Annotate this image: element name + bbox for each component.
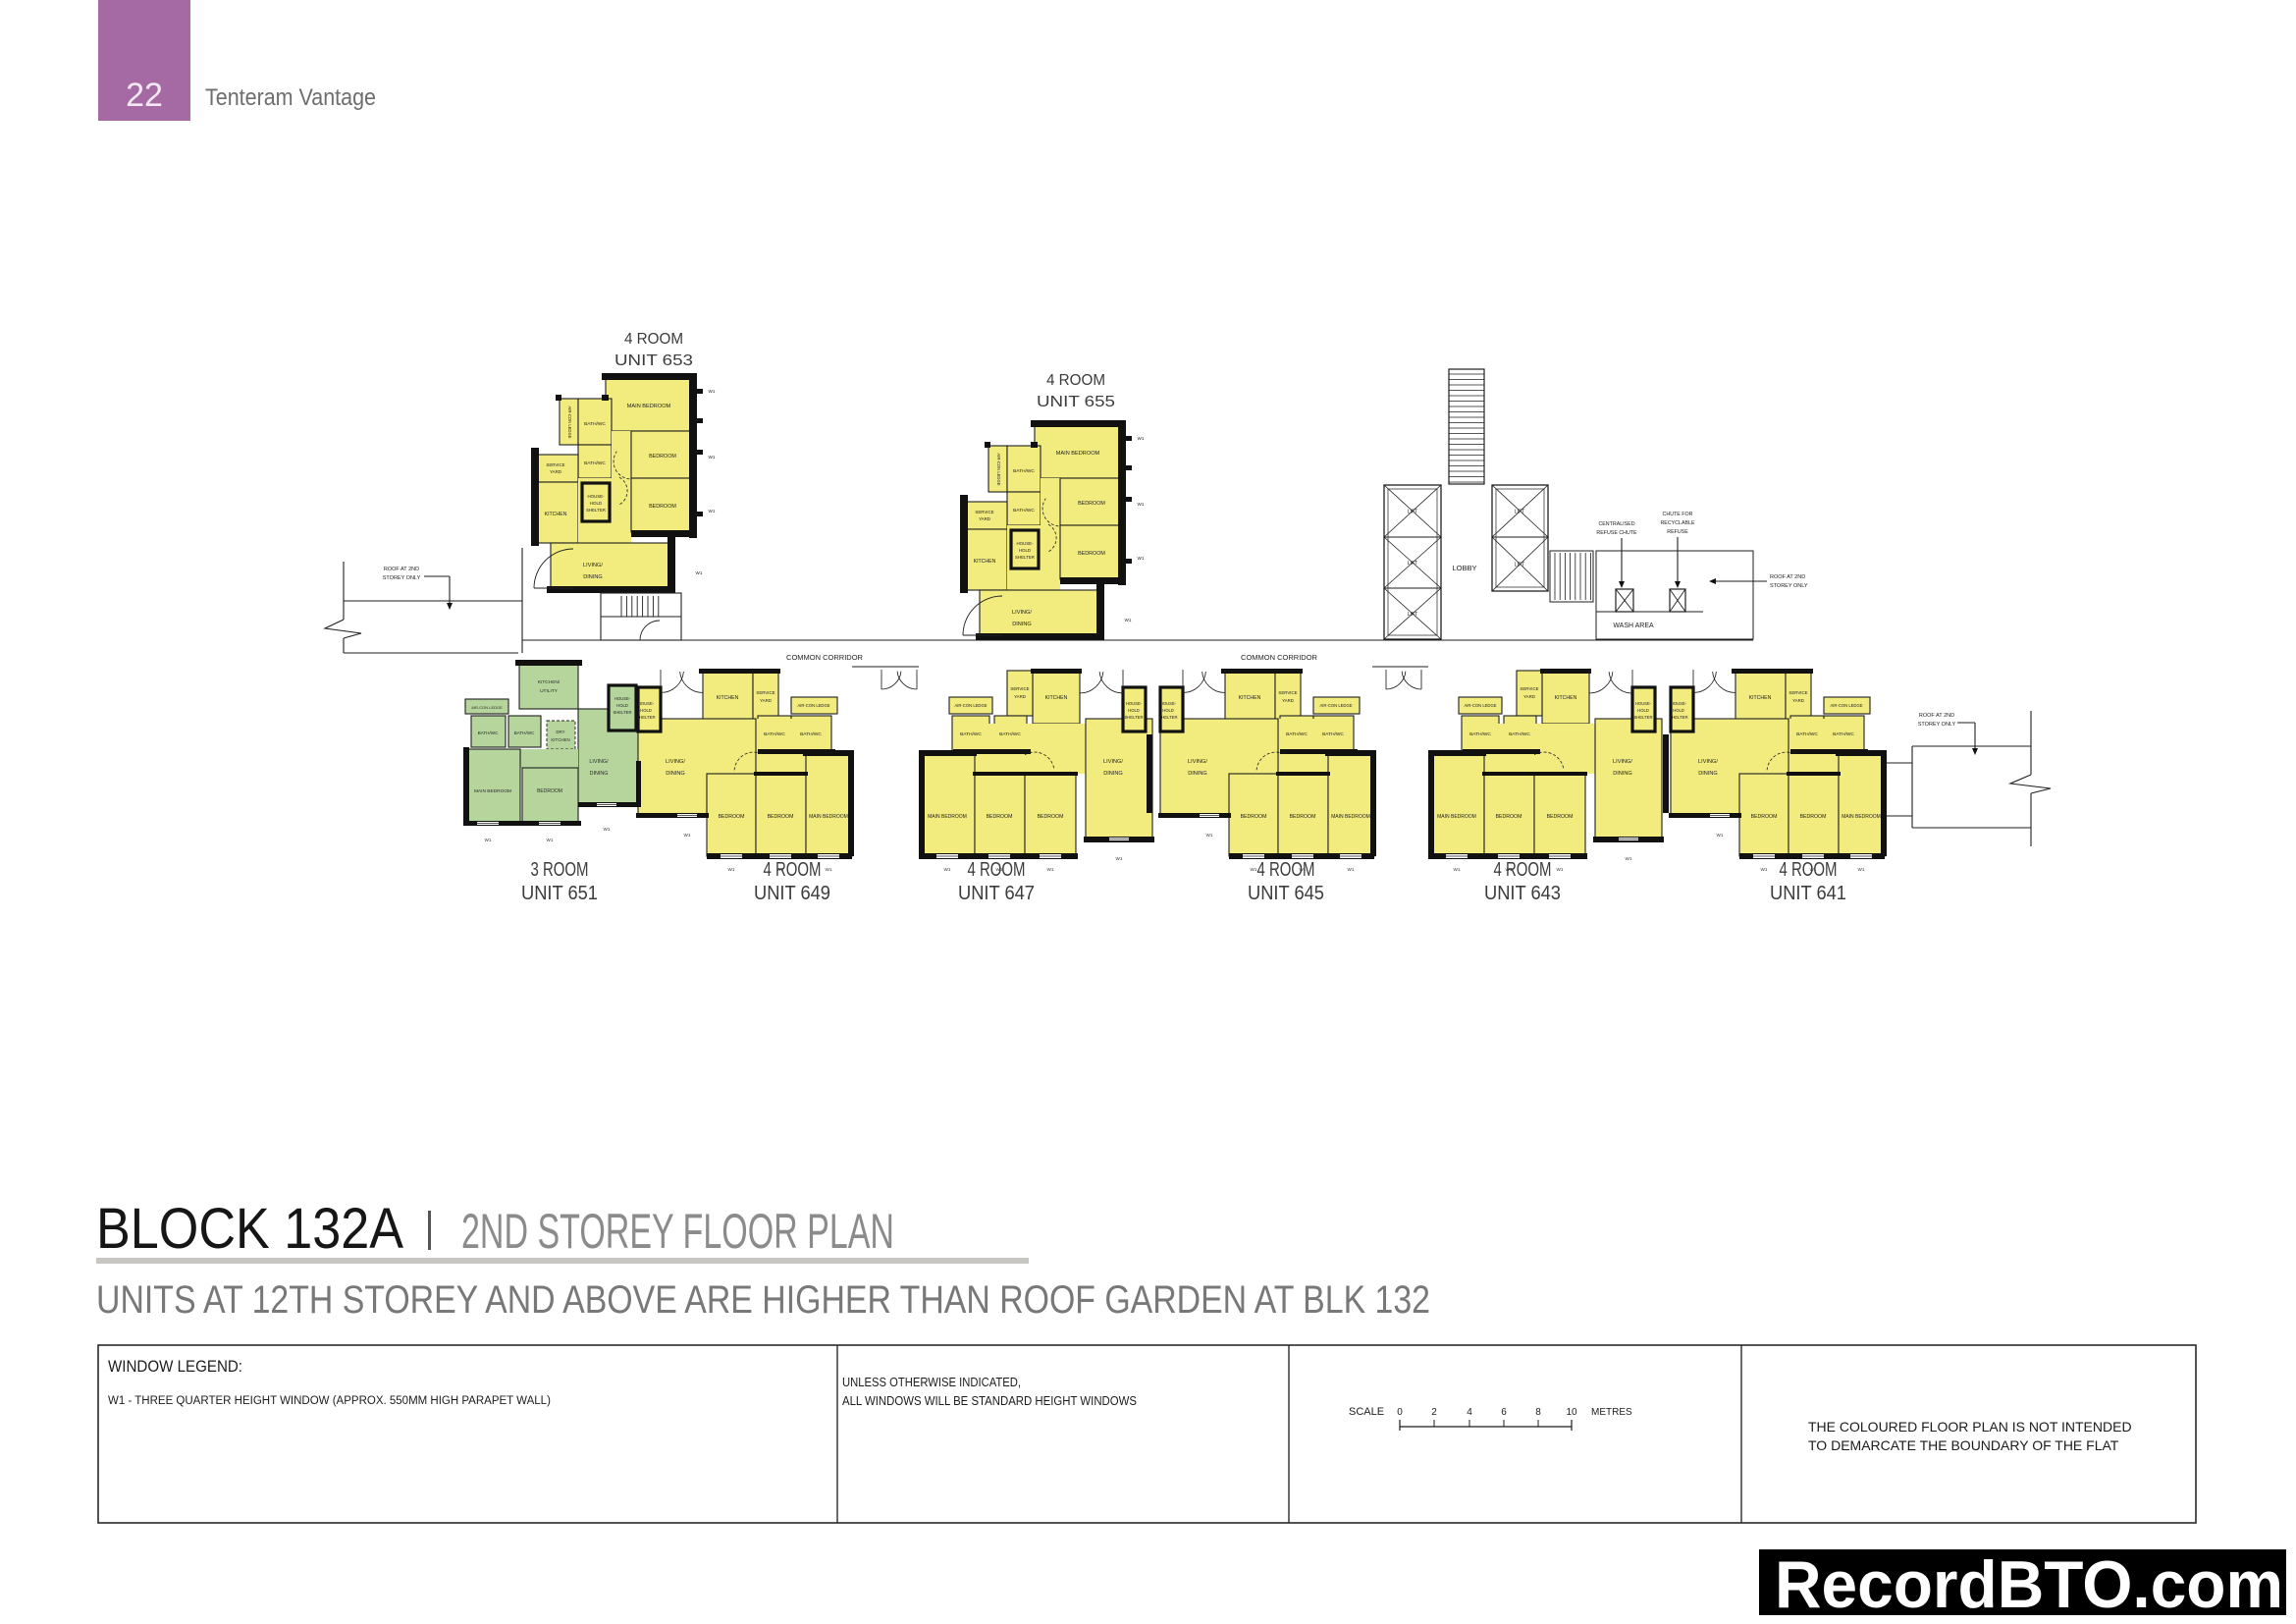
svg-text:BEDROOM: BEDROOM <box>1496 814 1522 820</box>
svg-text:10: 10 <box>1566 1407 1577 1418</box>
svg-text:4 ROOM: 4 ROOM <box>1780 859 1838 881</box>
svg-text:BEDROOM: BEDROOM <box>719 814 745 820</box>
svg-text:UNIT 641: UNIT 641 <box>1770 883 1846 904</box>
svg-text:BEDROOM: BEDROOM <box>1078 501 1105 507</box>
svg-text:KITCHEN: KITCHEN <box>551 737 569 742</box>
svg-text:SHELTER: SHELTER <box>1633 715 1652 720</box>
svg-text:BEDROOM: BEDROOM <box>649 454 676 460</box>
svg-text:MAIN BEDROOM: MAIN BEDROOM <box>1056 451 1100 457</box>
svg-text:LIVING/: LIVING/ <box>1012 610 1032 616</box>
svg-text:W1: W1 <box>1454 867 1461 872</box>
svg-text:BATH/WC: BATH/WC <box>999 731 1021 737</box>
svg-text:ROOF AT 2ND: ROOF AT 2ND <box>1770 574 1805 580</box>
svg-text:MAIN BEDROOM: MAIN BEDROOM <box>1331 814 1370 820</box>
svg-text:HOUSE-: HOUSE- <box>1635 701 1652 706</box>
svg-text:SERVICE: SERVICE <box>1278 690 1297 695</box>
svg-text:LIFT: LIFT <box>1515 510 1525 515</box>
svg-text:HOUSE-: HOUSE- <box>638 701 655 706</box>
svg-text:CENTRALISED: CENTRALISED <box>1598 521 1634 527</box>
svg-text:LIVING/: LIVING/ <box>583 563 603 568</box>
svg-text:HOLD: HOLD <box>616 703 628 708</box>
svg-text:HOLD: HOLD <box>1637 708 1649 713</box>
svg-text:BATH/WC: BATH/WC <box>514 731 536 735</box>
svg-text:BEDROOM: BEDROOM <box>768 814 794 820</box>
svg-text:W1: W1 <box>1116 856 1123 861</box>
svg-text:SHELTER: SHELTER <box>1015 555 1035 560</box>
svg-text:MAIN BEDROOM: MAIN BEDROOM <box>1437 814 1476 820</box>
svg-text:HOLD: HOLD <box>1128 708 1140 713</box>
svg-text:STOREY ONLY: STOREY ONLY <box>1770 583 1808 589</box>
svg-text:UNIT 647: UNIT 647 <box>958 883 1035 904</box>
svg-text:DINING: DINING <box>1012 622 1032 627</box>
svg-text:4 ROOM: 4 ROOM <box>1257 859 1315 881</box>
svg-text:KITCHEN/: KITCHEN/ <box>538 679 561 685</box>
svg-text:W1: W1 <box>1858 867 1865 872</box>
svg-text:UNIT 645: UNIT 645 <box>1248 883 1324 904</box>
svg-text:W1: W1 <box>1047 867 1054 872</box>
svg-text:KITCHEN: KITCHEN <box>1045 695 1068 701</box>
svg-text:W1: W1 <box>1626 856 1632 861</box>
svg-text:W1: W1 <box>709 509 716 514</box>
svg-text:LIVING/: LIVING/ <box>1613 759 1632 765</box>
svg-text:AIR-CON LEDGE: AIR-CON LEDGE <box>996 453 1001 485</box>
svg-text:4 ROOM: 4 ROOM <box>1494 859 1552 881</box>
svg-text:SERVICE: SERVICE <box>1520 686 1538 691</box>
svg-text:BATH/WC: BATH/WC <box>1286 731 1308 737</box>
svg-text:3 ROOM: 3 ROOM <box>531 859 589 881</box>
svg-text:YARD: YARD <box>1792 698 1804 703</box>
svg-text:LIVING/: LIVING/ <box>666 759 685 765</box>
svg-text:W1: W1 <box>684 833 691 838</box>
svg-text:6: 6 <box>1501 1407 1507 1418</box>
svg-text:W1: W1 <box>604 827 611 832</box>
svg-text:AIR-CON LEDGE: AIR-CON LEDGE <box>471 705 503 710</box>
svg-text:4 ROOM: 4 ROOM <box>624 331 683 348</box>
svg-text:MAIN BEDROOM: MAIN BEDROOM <box>928 814 967 820</box>
svg-text:W1: W1 <box>1717 833 1724 838</box>
svg-text:LIVING/: LIVING/ <box>589 759 609 765</box>
svg-text:W1 - THREE QUARTER HEIGHT WIND: W1 - THREE QUARTER HEIGHT WINDOW (APPROX… <box>108 1395 551 1407</box>
svg-text:WINDOW LEGEND:: WINDOW LEGEND: <box>108 1357 242 1376</box>
svg-text:W1: W1 <box>709 455 716 460</box>
svg-text:DINING: DINING <box>666 771 685 777</box>
svg-text:LIFT: LIFT <box>1515 563 1525 568</box>
svg-text:Tenteram Vantage: Tenteram Vantage <box>205 84 376 111</box>
svg-text:W1: W1 <box>696 570 703 575</box>
svg-text:BATH/WC: BATH/WC <box>584 421 606 427</box>
svg-text:REFUSE: REFUSE <box>1667 529 1688 535</box>
svg-text:4 ROOM: 4 ROOM <box>764 859 822 881</box>
svg-text:BATH/WC: BATH/WC <box>1509 731 1530 737</box>
svg-text:SCALE: SCALE <box>1349 1406 1384 1418</box>
svg-text:W1: W1 <box>1125 618 1132 623</box>
svg-text:LOBBY: LOBBY <box>1452 564 1476 572</box>
svg-text:YARD: YARD <box>550 469 561 474</box>
svg-text:BEDROOM: BEDROOM <box>537 788 562 794</box>
svg-text:2ND STOREY FLOOR PLAN: 2ND STOREY FLOOR PLAN <box>461 1204 894 1259</box>
svg-text:KITCHEN: KITCHEN <box>717 695 739 701</box>
svg-text:ALL WINDOWS WILL BE STANDARD H: ALL WINDOWS WILL BE STANDARD HEIGHT WIND… <box>842 1393 1137 1408</box>
svg-text:SERVICE: SERVICE <box>1010 686 1029 691</box>
svg-text:AIR-CON LEDGE: AIR-CON LEDGE <box>1464 703 1496 708</box>
svg-text:COMMON CORRIDOR: COMMON CORRIDOR <box>1241 653 1317 662</box>
svg-text:METRES: METRES <box>1591 1407 1632 1418</box>
svg-text:BEDROOM: BEDROOM <box>987 814 1013 820</box>
svg-text:4 ROOM: 4 ROOM <box>968 859 1026 881</box>
svg-text:BEDROOM: BEDROOM <box>1078 551 1105 557</box>
svg-text:UNIT 649: UNIT 649 <box>754 883 830 904</box>
svg-text:SERVICE: SERVICE <box>975 510 993 514</box>
svg-text:BEDROOM: BEDROOM <box>1241 814 1267 820</box>
svg-text:BATH/WC: BATH/WC <box>478 731 500 735</box>
svg-text:HOLD: HOLD <box>590 501 602 506</box>
svg-text:LIVING/: LIVING/ <box>1103 759 1123 765</box>
svg-text:W1: W1 <box>709 389 716 394</box>
svg-text:KITCHEN: KITCHEN <box>1555 695 1577 701</box>
svg-text:LIFT: LIFT <box>1408 612 1418 618</box>
svg-text:SERVICE: SERVICE <box>756 690 774 695</box>
svg-text:W1: W1 <box>1557 867 1564 872</box>
svg-text:STOREY ONLY: STOREY ONLY <box>383 575 421 581</box>
svg-text:CHUTE FOR: CHUTE FOR <box>1663 512 1693 517</box>
svg-text:REFUSE CHUTE: REFUSE CHUTE <box>1596 530 1637 536</box>
svg-text:DINING: DINING <box>1188 771 1207 777</box>
svg-text:SERVICE: SERVICE <box>546 462 564 467</box>
svg-text:W1: W1 <box>944 867 951 872</box>
svg-text:YARD: YARD <box>760 698 772 703</box>
svg-text:HOUSE-: HOUSE- <box>1016 541 1034 546</box>
svg-text:UTILITY: UTILITY <box>540 688 559 694</box>
svg-text:HOLD: HOLD <box>1019 548 1031 553</box>
svg-text:LIVING/: LIVING/ <box>1188 759 1207 765</box>
svg-text:SERVICE: SERVICE <box>1789 690 1807 695</box>
svg-text:BEDROOM: BEDROOM <box>1751 814 1778 820</box>
svg-text:4: 4 <box>1467 1407 1472 1418</box>
svg-text:HOUSE-: HOUSE- <box>1671 701 1687 706</box>
svg-text:AIR-CON LEDGE: AIR-CON LEDGE <box>954 703 987 708</box>
svg-text:BEDROOM: BEDROOM <box>1547 814 1574 820</box>
svg-text:MAIN BEDROOM: MAIN BEDROOM <box>809 814 848 820</box>
svg-text:22: 22 <box>126 77 163 114</box>
svg-text:W1: W1 <box>547 838 554 842</box>
svg-text:HOLD: HOLD <box>1673 708 1684 713</box>
svg-text:LIFT: LIFT <box>1408 561 1418 567</box>
svg-text:DRY: DRY <box>556 730 564 734</box>
svg-text:MAIN BEDROOM: MAIN BEDROOM <box>1842 814 1881 820</box>
svg-text:HOUSE-: HOUSE- <box>587 494 605 499</box>
svg-text:SHELTER: SHELTER <box>1669 715 1687 720</box>
svg-text:AIR-CON LEDGE: AIR-CON LEDGE <box>797 703 829 708</box>
svg-text:UNLESS OTHERWISE INDICATED,: UNLESS OTHERWISE INDICATED, <box>842 1375 1021 1389</box>
svg-text:DINING: DINING <box>1698 771 1718 777</box>
svg-text:W1: W1 <box>1138 436 1145 441</box>
svg-text:KITCHEN: KITCHEN <box>974 559 996 565</box>
svg-text:TO DEMARCATE THE BOUNDARY OF T: TO DEMARCATE THE BOUNDARY OF THE FLAT <box>1808 1437 2119 1453</box>
svg-text:HOLD: HOLD <box>640 708 652 713</box>
svg-text:YARD: YARD <box>979 516 990 521</box>
svg-text:DINING: DINING <box>590 771 609 777</box>
svg-text:THE COLOURED FLOOR PLAN IS NOT: THE COLOURED FLOOR PLAN IS NOT INTENDED <box>1808 1419 2132 1435</box>
svg-text:UNIT 643: UNIT 643 <box>1484 883 1561 904</box>
svg-text:ROOF AT 2ND: ROOF AT 2ND <box>1919 713 1954 719</box>
svg-text:BATH/WC: BATH/WC <box>960 731 982 737</box>
svg-text:LIVING/: LIVING/ <box>1698 759 1718 765</box>
svg-text:BATH/WC: BATH/WC <box>764 731 785 737</box>
svg-text:W1: W1 <box>1206 833 1213 838</box>
svg-text:UNITS AT 12TH STOREY AND ABOVE: UNITS AT 12TH STOREY AND ABOVE ARE HIGHE… <box>96 1278 1430 1322</box>
svg-text:DINING: DINING <box>583 574 603 580</box>
svg-text:BATH/WC: BATH/WC <box>800 731 822 737</box>
svg-text:W1: W1 <box>1138 502 1145 507</box>
svg-text:0: 0 <box>1397 1407 1403 1418</box>
svg-text:MAIN BEDROOM: MAIN BEDROOM <box>627 404 671 409</box>
svg-text:BLOCK 132A: BLOCK 132A <box>96 1197 403 1261</box>
svg-text:HOLD: HOLD <box>1162 708 1174 713</box>
svg-text:W1: W1 <box>728 867 735 872</box>
svg-text:BATH/WC: BATH/WC <box>1013 508 1035 514</box>
svg-text:4 ROOM: 4 ROOM <box>1046 372 1105 389</box>
svg-text:W1: W1 <box>1138 556 1145 561</box>
svg-text:COMMON CORRIDOR: COMMON CORRIDOR <box>786 653 863 662</box>
svg-text:AIR-CON LEDGE: AIR-CON LEDGE <box>1319 703 1352 708</box>
svg-text:SHELTER: SHELTER <box>613 710 631 715</box>
svg-text:2: 2 <box>1431 1407 1437 1418</box>
svg-text:BATH/WC: BATH/WC <box>1322 731 1344 737</box>
svg-text:SHELTER: SHELTER <box>586 508 606 513</box>
svg-text:BATH/WC: BATH/WC <box>1013 468 1035 474</box>
svg-text:KITCHEN: KITCHEN <box>545 512 567 517</box>
svg-text:SHELTER: SHELTER <box>636 715 655 720</box>
svg-text:BEDROOM: BEDROOM <box>1290 814 1316 820</box>
svg-text:W1: W1 <box>826 867 832 872</box>
svg-text:RecordBTO.com: RecordBTO.com <box>1775 1547 2283 1622</box>
svg-text:RECYCLABLE: RECYCLABLE <box>1660 520 1694 526</box>
svg-text:AIR-CON LEDGE: AIR-CON LEDGE <box>567 406 572 438</box>
svg-text:BEDROOM: BEDROOM <box>649 504 676 510</box>
svg-text:DINING: DINING <box>1103 771 1123 777</box>
svg-text:LIFT: LIFT <box>1408 510 1418 515</box>
svg-text:UNIT 655: UNIT 655 <box>1037 394 1115 410</box>
svg-text:BATH/WC: BATH/WC <box>584 460 606 466</box>
svg-text:UNIT 653: UNIT 653 <box>614 352 693 369</box>
svg-text:KITCHEN: KITCHEN <box>1239 695 1261 701</box>
svg-text:AIR-CON LEDGE: AIR-CON LEDGE <box>1830 703 1862 708</box>
svg-text:SHELTER: SHELTER <box>1124 715 1143 720</box>
svg-text:BATH/WC: BATH/WC <box>1833 731 1854 737</box>
svg-text:BEDROOM: BEDROOM <box>1038 814 1064 820</box>
svg-text:MAIN BEDROOM: MAIN BEDROOM <box>474 788 511 794</box>
svg-text:HOUSE-: HOUSE- <box>1160 701 1177 706</box>
svg-text:STOREY ONLY: STOREY ONLY <box>1918 722 1956 728</box>
svg-text:ROOF AT 2ND: ROOF AT 2ND <box>384 567 419 572</box>
svg-text:BATH/WC: BATH/WC <box>1796 731 1818 737</box>
svg-text:UNIT 651: UNIT 651 <box>521 883 598 904</box>
svg-text:HOUSE-: HOUSE- <box>1126 701 1143 706</box>
svg-text:YARD: YARD <box>1014 694 1026 699</box>
svg-text:W1: W1 <box>485 838 492 842</box>
svg-text:BEDROOM: BEDROOM <box>1800 814 1827 820</box>
svg-text:BATH/WC: BATH/WC <box>1469 731 1491 737</box>
svg-text:YARD: YARD <box>1523 694 1535 699</box>
svg-text:W1: W1 <box>1348 867 1355 872</box>
svg-text:WASH AREA: WASH AREA <box>1613 623 1654 629</box>
svg-text:DINING: DINING <box>1613 771 1632 777</box>
svg-text:W1: W1 <box>1761 867 1768 872</box>
svg-text:HOUSE-: HOUSE- <box>614 696 631 701</box>
svg-text:8: 8 <box>1535 1407 1541 1418</box>
svg-text:SHELTER: SHELTER <box>1158 715 1177 720</box>
svg-text:KITCHEN: KITCHEN <box>1749 695 1772 701</box>
svg-text:YARD: YARD <box>1282 698 1294 703</box>
